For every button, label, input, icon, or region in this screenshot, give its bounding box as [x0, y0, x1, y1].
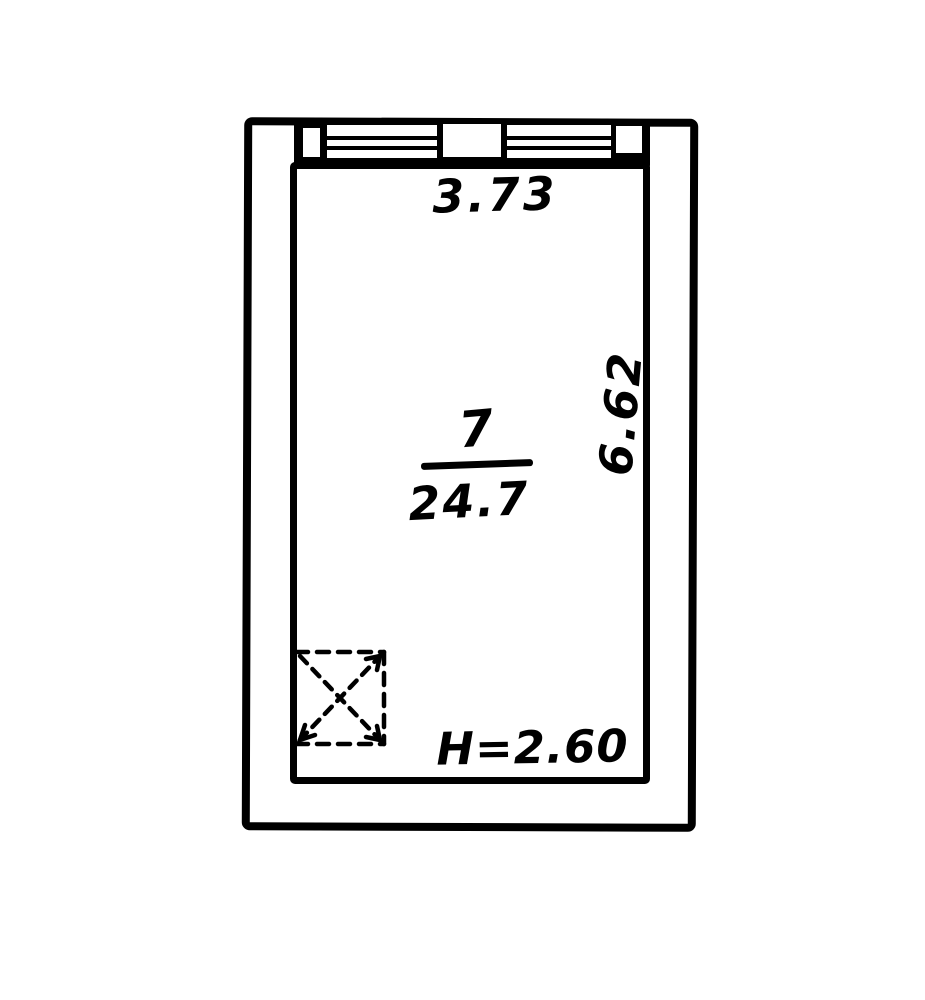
shaft-crossed-arrows-icon: [290, 645, 390, 750]
dimension-width-label: 3.73: [414, 166, 575, 224]
ceiling-height-label: H=2.60: [425, 719, 641, 776]
wall-cavity-left: [303, 128, 320, 157]
window-glazing-line: [506, 146, 612, 150]
room-area-label: 24.7: [397, 470, 542, 531]
top-wall: [294, 120, 650, 168]
window-glazing-line: [506, 136, 612, 140]
window-glazing-line: [326, 146, 438, 150]
window-glazing-line: [326, 136, 438, 140]
window-icon: [507, 125, 611, 158]
floor-plan-sheet: 3.73 7 24.7 6.62 H=2.60: [0, 0, 925, 1000]
window-icon: [327, 125, 437, 158]
wall-cavity-right: [616, 126, 642, 153]
room-number-label: 7: [418, 395, 535, 463]
window-pier: [443, 124, 501, 157]
